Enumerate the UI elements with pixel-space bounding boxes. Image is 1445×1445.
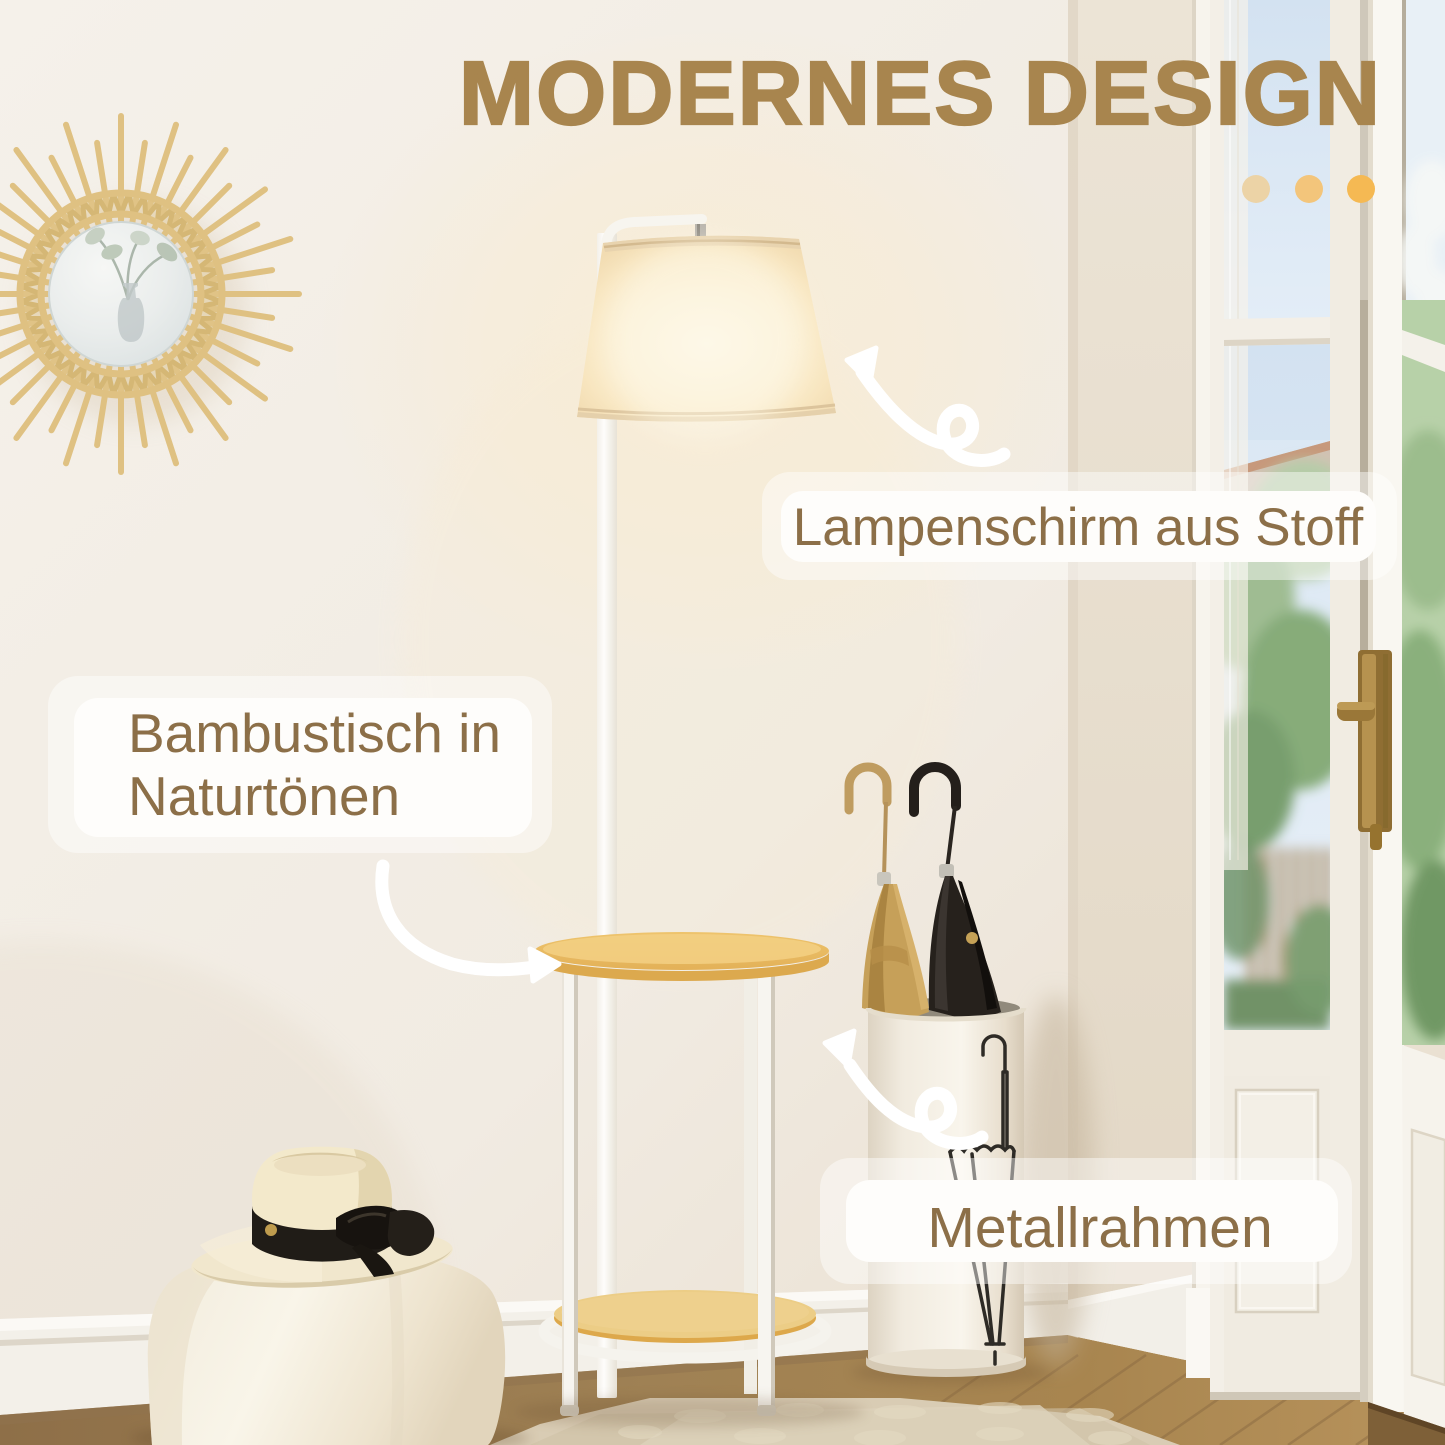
svg-text:Lampenschirm aus Stoff: Lampenschirm aus Stoff (793, 498, 1364, 557)
svg-text:Metallrahmen: Metallrahmen (927, 1196, 1272, 1260)
svg-text:MODERNES DESIGN: MODERNES DESIGN (459, 44, 1382, 144)
svg-text:Bambustisch in: Bambustisch in (128, 702, 501, 764)
svg-text:Naturtönen: Naturtönen (128, 765, 400, 827)
